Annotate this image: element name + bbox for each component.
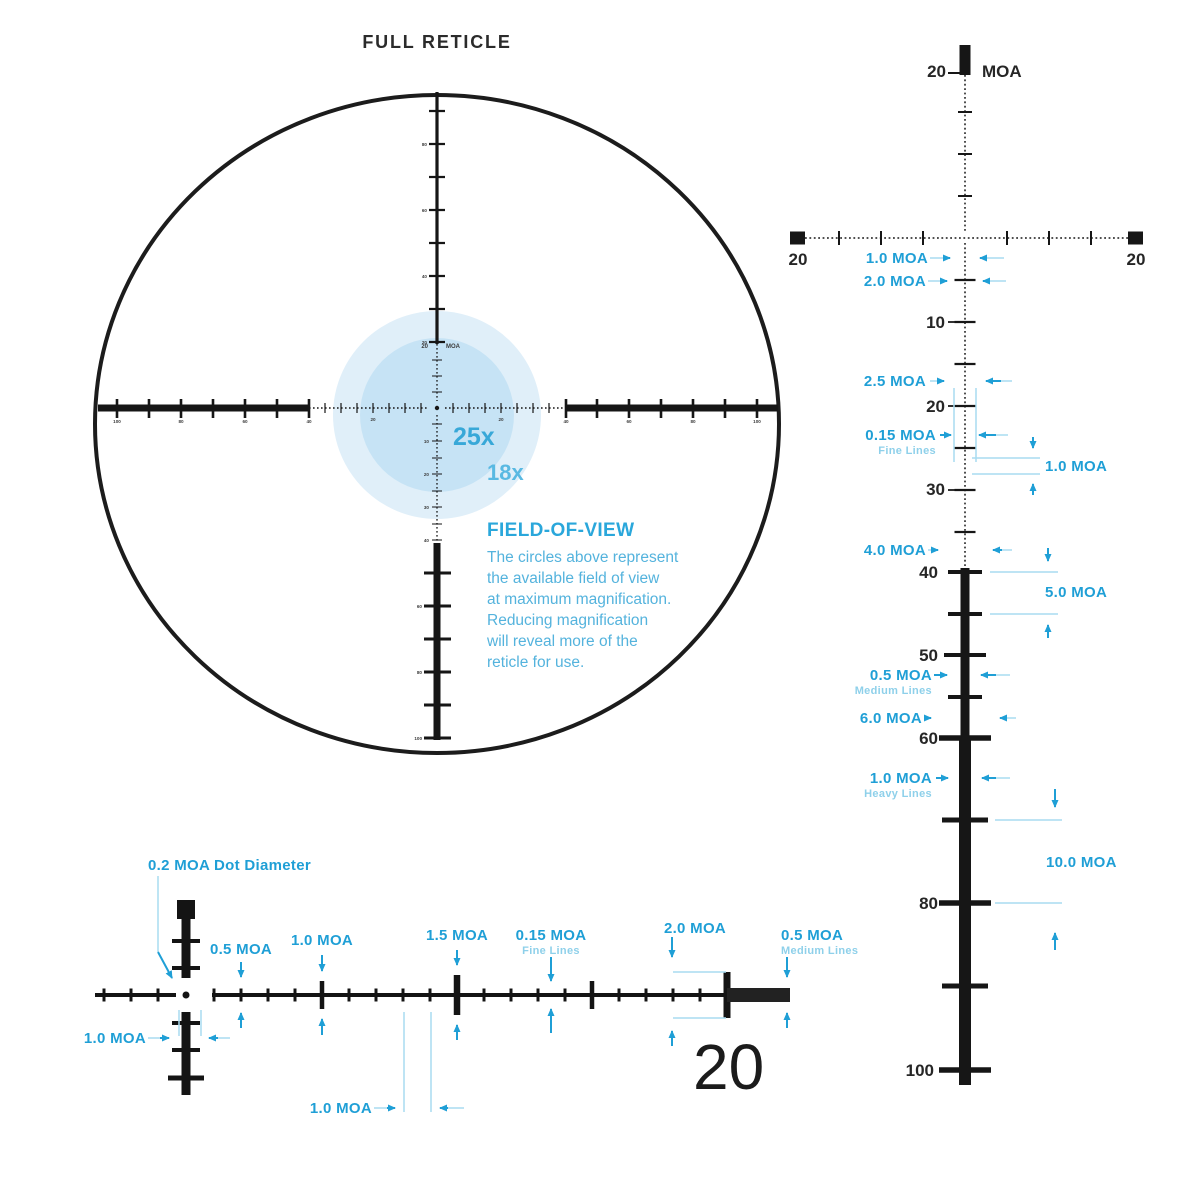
scale-100: 100 <box>884 1061 934 1081</box>
center-aiming-dot <box>183 992 190 999</box>
ann-1moa-tick-height: 1.0 MOA <box>287 932 357 949</box>
fov-line: The circles above represent <box>487 547 678 568</box>
scale-80: 80 <box>888 894 938 914</box>
ann-1moa-spacing: 1.0 MOA <box>1045 458 1107 475</box>
svg-text:20: 20 <box>498 417 504 422</box>
svg-text:40: 40 <box>424 538 430 543</box>
ann-2moa-width: 2.0 MOA <box>828 273 926 290</box>
reticle-center-dot <box>435 406 439 410</box>
svg-text:20: 20 <box>421 344 428 350</box>
vertical-scale-top-value: 20 <box>908 62 946 82</box>
ann-4moa-tick: 4.0 MOA <box>828 542 926 559</box>
reticle-spec-diagram: 100 80 60 40 20 20 40 60 80 100 80 60 40… <box>0 0 1200 1200</box>
full-reticle-title: FULL RETICLE <box>337 32 537 53</box>
fov-line: will reveal more of the <box>487 631 678 652</box>
fov-line: Reducing magnification <box>487 610 678 631</box>
vertical-scale-unit: MOA <box>982 62 1022 82</box>
svg-text:30: 30 <box>424 505 430 510</box>
svg-text:60: 60 <box>417 604 423 609</box>
ann-1moa-heavy: 1.0 MOA <box>834 770 932 787</box>
fov-line: at maximum magnification. <box>487 589 678 610</box>
svg-text:60: 60 <box>242 419 248 424</box>
field-of-view-heading: FIELD-OF-VIEW <box>487 520 634 542</box>
ann-05moa-medium: 0.5 MOA <box>834 667 932 684</box>
medium-bar-20moa <box>727 988 790 1002</box>
ann-05moa-tick-height: 0.5 MOA <box>206 941 276 958</box>
svg-text:60: 60 <box>422 208 428 213</box>
svg-text:100: 100 <box>113 419 121 424</box>
svg-text:100: 100 <box>753 419 761 424</box>
fov-line: reticle for use. <box>487 652 678 673</box>
magnification-18x-label: 18x <box>487 460 524 486</box>
svg-text:MOA: MOA <box>446 344 461 350</box>
ann-fine-lines-sub-h: Fine Lines <box>511 945 591 957</box>
ann-2p5moa-tick: 2.5 MOA <box>828 373 926 390</box>
svg-text:20: 20 <box>370 417 376 422</box>
horizontal-axis-left-20: 20 <box>778 250 818 270</box>
svg-text:80: 80 <box>417 670 423 675</box>
ann-medium-lines-sub-h: Medium Lines <box>781 945 858 957</box>
ann-15moa-tick-height: 1.5 MOA <box>422 927 492 944</box>
ann-medium-lines-sub: Medium Lines <box>834 685 932 697</box>
svg-text:40: 40 <box>422 274 428 279</box>
svg-text:20: 20 <box>424 472 430 477</box>
scale-50: 50 <box>888 646 938 666</box>
ann-1moa-post-width: 1.0 MOA <box>62 1030 146 1047</box>
svg-text:40: 40 <box>306 419 312 424</box>
ann-015moa-fine: 0.15 MOA <box>838 427 936 444</box>
magnification-25x-label: 25x <box>453 423 495 452</box>
svg-text:80: 80 <box>422 142 428 147</box>
scale-10: 10 <box>895 313 945 333</box>
fov-line: the available field of view <box>487 568 678 589</box>
ann-2moa-spacing-h: 2.0 MOA <box>655 920 735 937</box>
leader-lines-vertical-detail <box>928 258 1062 903</box>
scale-40: 40 <box>888 563 938 583</box>
ann-05moa-bar-height: 0.5 MOA <box>781 927 843 944</box>
svg-text:80: 80 <box>178 419 184 424</box>
horizontal-detail-drawing <box>95 876 790 1112</box>
svg-text:80: 80 <box>690 419 696 424</box>
svg-text:40: 40 <box>563 419 569 424</box>
ann-1moa-width: 1.0 MOA <box>830 250 928 267</box>
horizontal-axis-right-20: 20 <box>1116 250 1156 270</box>
svg-text:60: 60 <box>626 419 632 424</box>
ann-6moa-tick: 6.0 MOA <box>824 710 922 727</box>
scale-20: 20 <box>895 397 945 417</box>
svg-text:100: 100 <box>414 736 422 741</box>
field-of-view-description: The circles above represent the availabl… <box>487 547 678 673</box>
ann-dot-diameter: 0.2 MOA Dot Diameter <box>148 857 311 874</box>
ann-heavy-lines-sub: Heavy Lines <box>834 788 932 800</box>
scale-60: 60 <box>888 729 938 749</box>
ann-5moa-spacing: 5.0 MOA <box>1045 584 1107 601</box>
ann-10moa-spacing: 10.0 MOA <box>1046 854 1117 871</box>
ann-015moa-line-width: 0.15 MOA <box>511 927 591 944</box>
bar-20moa-value: 20 <box>693 1030 764 1104</box>
scale-30: 30 <box>895 480 945 500</box>
ann-fine-lines-sub: Fine Lines <box>838 445 936 457</box>
ann-1moa-spacing-h: 1.0 MOA <box>288 1100 372 1117</box>
svg-text:10: 10 <box>424 439 430 444</box>
measure-arrows-vertical-detail <box>926 258 1055 950</box>
